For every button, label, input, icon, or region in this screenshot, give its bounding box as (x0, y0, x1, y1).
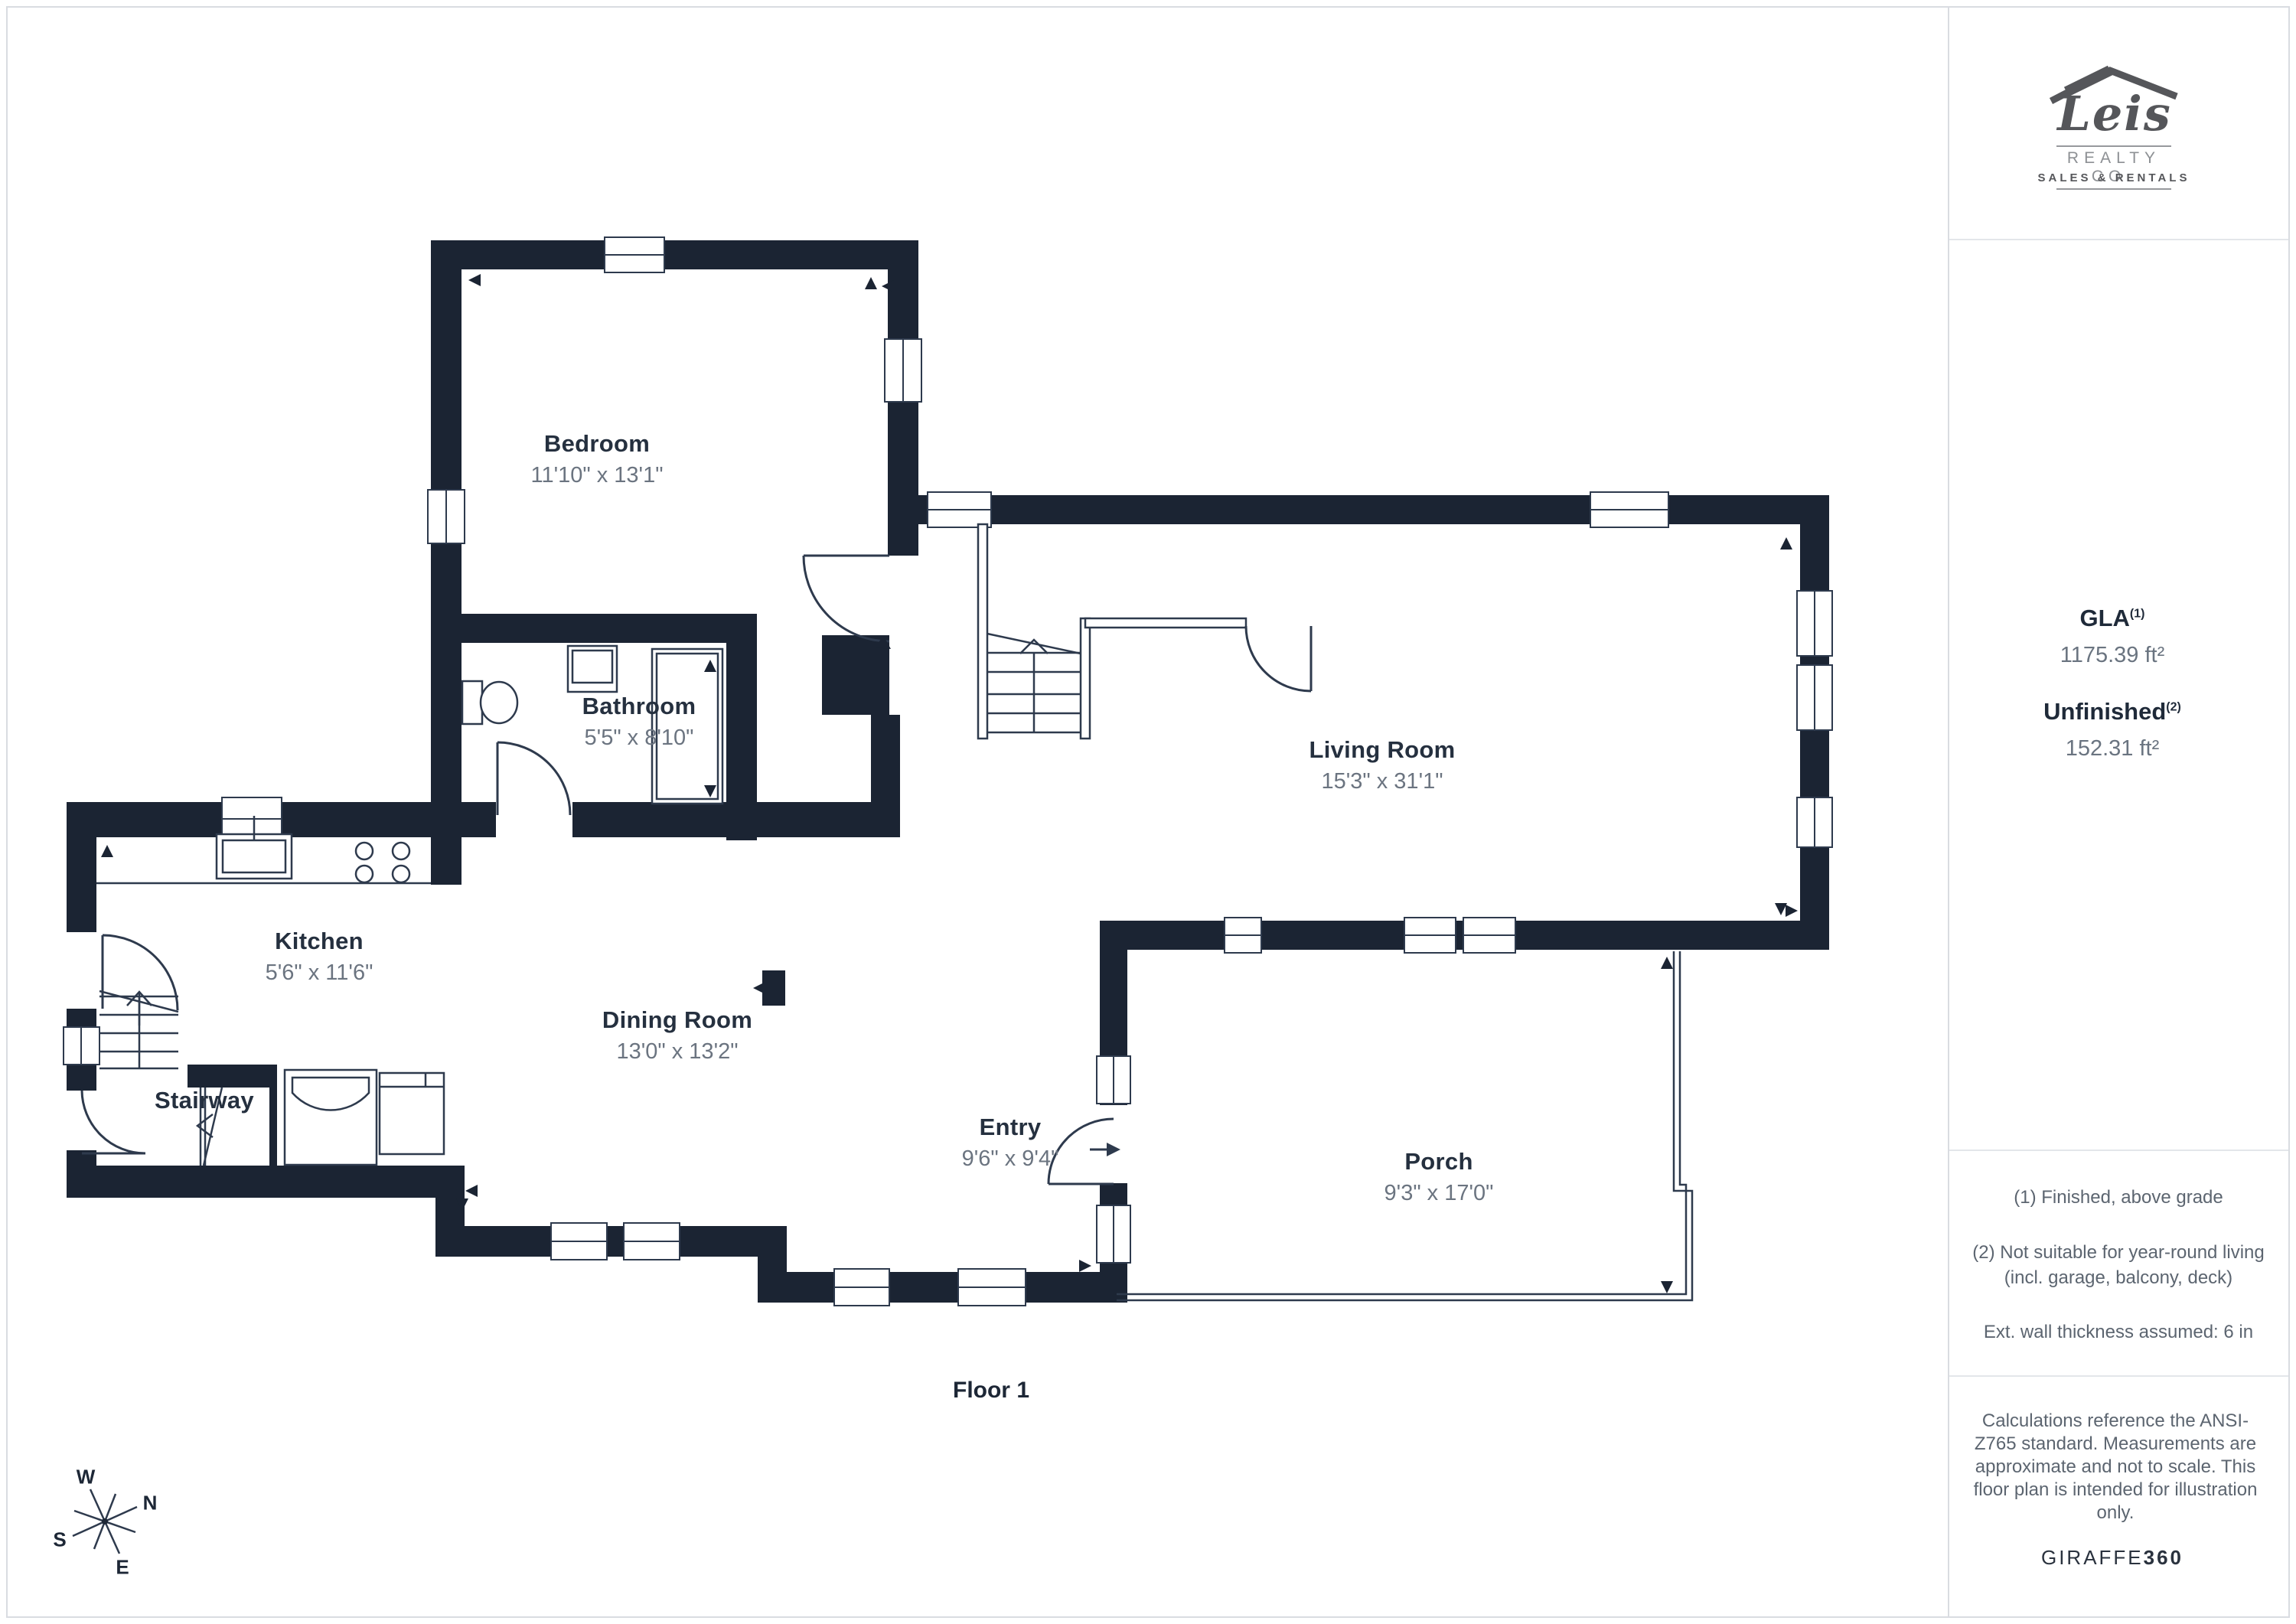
compass-icon (73, 1489, 137, 1554)
sidebar-section-divider-3 (1949, 1375, 2288, 1377)
unfinished-metric: Unfinished(2) 152.31 ft² (2043, 698, 2181, 761)
footnote-3: Ext. wall thickness assumed: 6 in (1984, 1319, 2253, 1345)
room-label-porch: Porch 9'3" x 17'0" (1384, 1148, 1494, 1206)
thin-walls (978, 524, 1246, 739)
room-label-dining-room: Dining Room 13'0" x 13'2" (602, 1006, 752, 1065)
logo-tagline: SALES & RENTALS (2038, 171, 2190, 184)
footnote-1: (1) Finished, above grade (2014, 1185, 2223, 1210)
compass-north-label: N (143, 1492, 158, 1515)
room-label-bedroom: Bedroom 11'10" x 13'1" (530, 430, 663, 488)
logo-wordmark: Leis (2057, 86, 2172, 142)
unfinished-value: 152.31 ft² (2043, 736, 2181, 761)
footnote-2-line2: (incl. garage, balcony, deck) (1972, 1265, 2265, 1290)
giraffe-360: 360 (2144, 1546, 2183, 1569)
footnote-2-line1: (2) Not suitable for year-round living (1972, 1240, 2265, 1265)
gla-value: 1175.39 ft² (2060, 643, 2165, 668)
gla-footnote-ref: (1) (2130, 608, 2145, 621)
room-label-kitchen: Kitchen 5'6" x 11'6" (266, 928, 373, 986)
gla-metric: GLA(1) 1175.39 ft² (2060, 605, 2165, 668)
entry-door-opening (1097, 1105, 1130, 1183)
giraffe-text: GIRAFFE (2041, 1546, 2144, 1569)
disclaimer-text: Calculations reference the ANSI-Z765 sta… (1962, 1410, 2268, 1525)
gla-label: GLA (2079, 605, 2129, 631)
room-label-entry: Entry 9'6" x 9'4" (962, 1114, 1059, 1172)
floorplan-page: Bedroom 11'10" x 13'1" Bathroom 5'5" x 8… (0, 0, 2296, 1624)
floorplan-drawing (0, 0, 2296, 1624)
giraffe360-brand: GIRAFFE360 (2041, 1546, 2183, 1570)
room-label-living-room: Living Room 15'3" x 31'1" (1309, 736, 1455, 794)
living-room-stairs (987, 634, 1081, 732)
room-label-bathroom: Bathroom 5'5" x 8'10" (582, 693, 696, 751)
compass-south-label: S (53, 1528, 66, 1552)
floor-label: Floor 1 (953, 1378, 1029, 1404)
unfinished-label: Unfinished (2043, 698, 2166, 725)
footnote-2: (2) Not suitable for year-round living (… (1972, 1240, 2265, 1290)
porch-boundary (1117, 951, 1692, 1300)
compass-west-label: W (77, 1466, 96, 1489)
sidebar-section-divider-1 (1949, 239, 2288, 240)
sidebar-section-divider-2 (1949, 1150, 2288, 1151)
unfinished-footnote-ref: (2) (2166, 701, 2181, 714)
room-label-stairway: Stairway (155, 1087, 254, 1114)
compass-east-label: E (116, 1556, 129, 1580)
